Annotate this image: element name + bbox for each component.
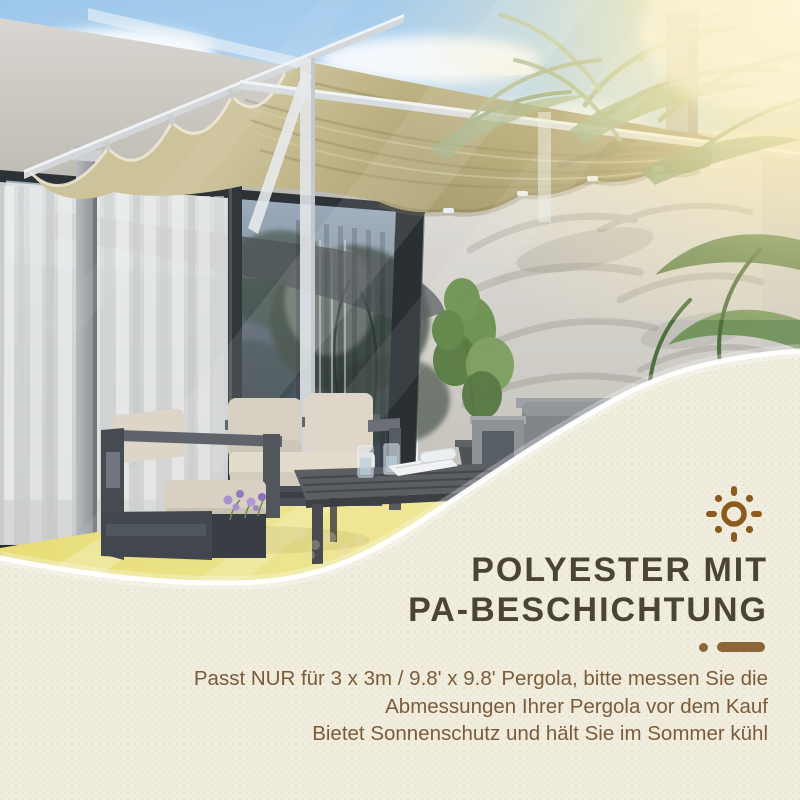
feature-description: Passt NUR für 3 x 3m / 9.8' x 9.8' Pergo… xyxy=(194,665,768,748)
heading-divider xyxy=(194,642,765,652)
description-line-2: Abmessungen Ihrer Pergola vor dem Kauf xyxy=(194,693,768,721)
heading-line-2: PA-BESCHICHTUNG xyxy=(194,590,768,630)
divider-dot xyxy=(699,643,708,652)
description-line-3: Bietet Sonnenschutz und hält Sie im Somm… xyxy=(194,720,768,748)
divider-bar xyxy=(717,642,765,652)
description-line-1: Passt NUR für 3 x 3m / 9.8' x 9.8' Pergo… xyxy=(194,665,768,693)
feature-heading: POLYESTER MIT PA-BESCHICHTUNG xyxy=(194,550,768,630)
sun-icon xyxy=(703,484,765,544)
info-panel: POLYESTER MIT PA-BESCHICHTUNG Passt NUR … xyxy=(194,484,768,748)
product-image: POLYESTER MIT PA-BESCHICHTUNG Passt NUR … xyxy=(0,0,800,800)
heading-line-1: POLYESTER MIT xyxy=(194,550,768,590)
